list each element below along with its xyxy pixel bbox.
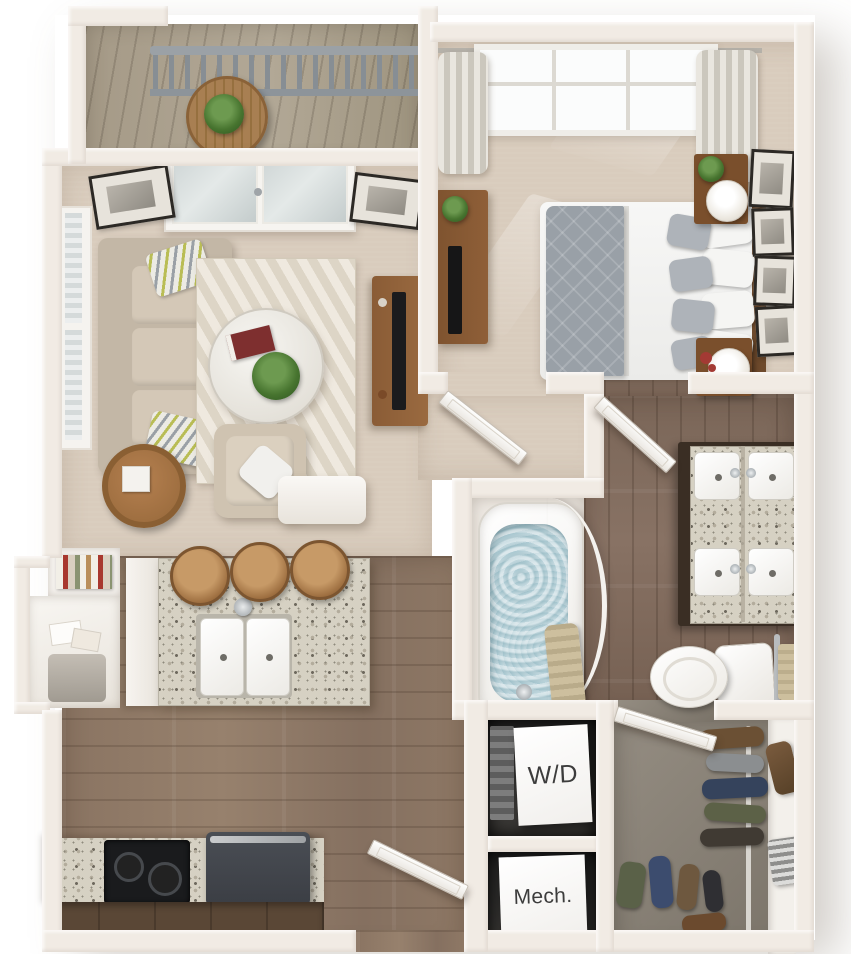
flower-decor xyxy=(700,352,712,364)
tv-screen xyxy=(392,292,406,410)
vanity-mirror-edge xyxy=(741,446,745,622)
washer-machine-side xyxy=(490,726,514,820)
cooktop xyxy=(104,840,190,904)
french-door-glass-right xyxy=(262,158,348,224)
wall xyxy=(452,478,604,498)
bar-stool xyxy=(290,540,350,600)
wall xyxy=(42,148,434,166)
wall xyxy=(546,372,604,394)
bed-blanket xyxy=(546,206,624,376)
wall xyxy=(418,6,438,394)
hanging-clothes xyxy=(702,776,769,799)
bed-sheet-fold xyxy=(624,206,629,376)
toilet-seat xyxy=(663,657,717,701)
gallery-frame xyxy=(749,149,796,209)
console-decor xyxy=(378,390,387,399)
railing-bottom-rail xyxy=(150,89,422,96)
cooktop-burner xyxy=(114,852,144,882)
bedroom-window xyxy=(474,44,718,136)
nightstand-lamp xyxy=(706,180,748,222)
window-blind xyxy=(65,213,82,323)
railing-balusters xyxy=(153,55,419,90)
hanging-clothes xyxy=(700,827,765,847)
wall xyxy=(418,372,448,394)
wall xyxy=(688,372,814,394)
railing-top-rail xyxy=(150,46,422,55)
bedroom-doorway-threshold xyxy=(448,372,546,396)
french-door-glass-left xyxy=(172,158,258,224)
mechanical-unit: Mech. xyxy=(499,855,588,940)
accent-pillow xyxy=(670,298,715,334)
framed-picture xyxy=(349,172,425,230)
gallery-frame xyxy=(753,255,797,306)
wall xyxy=(68,6,168,26)
books xyxy=(56,555,112,589)
wall xyxy=(68,6,86,164)
wall xyxy=(430,22,814,42)
island-faucet xyxy=(234,598,252,616)
wall xyxy=(488,836,598,852)
curtain xyxy=(438,52,488,174)
nightstand-plant xyxy=(698,156,724,182)
wall xyxy=(42,930,356,952)
accent-pillow xyxy=(668,255,714,293)
refrigerator xyxy=(206,832,310,906)
console-decor xyxy=(378,298,387,307)
tub-faucet xyxy=(516,684,532,700)
wall xyxy=(14,556,50,568)
wall xyxy=(464,930,814,952)
wall xyxy=(42,148,62,558)
floor-plan: W/D Mech. xyxy=(0,0,851,954)
balcony-railing xyxy=(150,46,422,98)
desk-papers xyxy=(70,628,101,653)
sink-basin-left xyxy=(200,618,244,696)
wall xyxy=(42,710,62,952)
washer-dryer-unit: W/D xyxy=(513,724,592,826)
vanity-faucet xyxy=(730,564,740,574)
island-sink xyxy=(196,614,292,698)
wall xyxy=(794,22,814,952)
vanity-faucet xyxy=(730,468,740,478)
wall xyxy=(714,700,814,720)
wall xyxy=(464,700,488,952)
mechanical-label: Mech. xyxy=(513,884,572,910)
bar-stool xyxy=(230,542,290,602)
wall xyxy=(14,556,30,714)
hanging-clothes xyxy=(706,752,765,773)
wall xyxy=(452,478,472,720)
vanity-faucet xyxy=(746,564,756,574)
living-room-window xyxy=(60,206,92,450)
toilet-bowl xyxy=(650,646,728,708)
bar-stool xyxy=(170,546,230,606)
bedroom-tv-screen xyxy=(448,246,462,334)
gallery-frame xyxy=(755,305,800,357)
hanging-clothes xyxy=(648,855,674,909)
side-table-decor xyxy=(122,466,150,492)
wall xyxy=(596,700,614,952)
bedroom-stand-plant xyxy=(442,196,468,222)
gallery-frame xyxy=(751,207,795,256)
vanity-faucet xyxy=(746,468,756,478)
built-in-desk xyxy=(28,596,120,708)
wall-mounted-unit xyxy=(278,476,366,524)
french-door-handle xyxy=(254,188,262,196)
entry-doorway-threshold xyxy=(356,930,464,952)
window-blind xyxy=(65,330,82,440)
washer-dryer-label: W/D xyxy=(527,759,579,791)
desk-chair-shadow xyxy=(48,654,106,702)
balcony-plant xyxy=(204,94,244,134)
cooktop-burner xyxy=(148,862,182,896)
refrigerator-handle xyxy=(210,836,306,843)
coffee-table-plant xyxy=(252,352,300,400)
sink-basin-right xyxy=(246,618,290,696)
